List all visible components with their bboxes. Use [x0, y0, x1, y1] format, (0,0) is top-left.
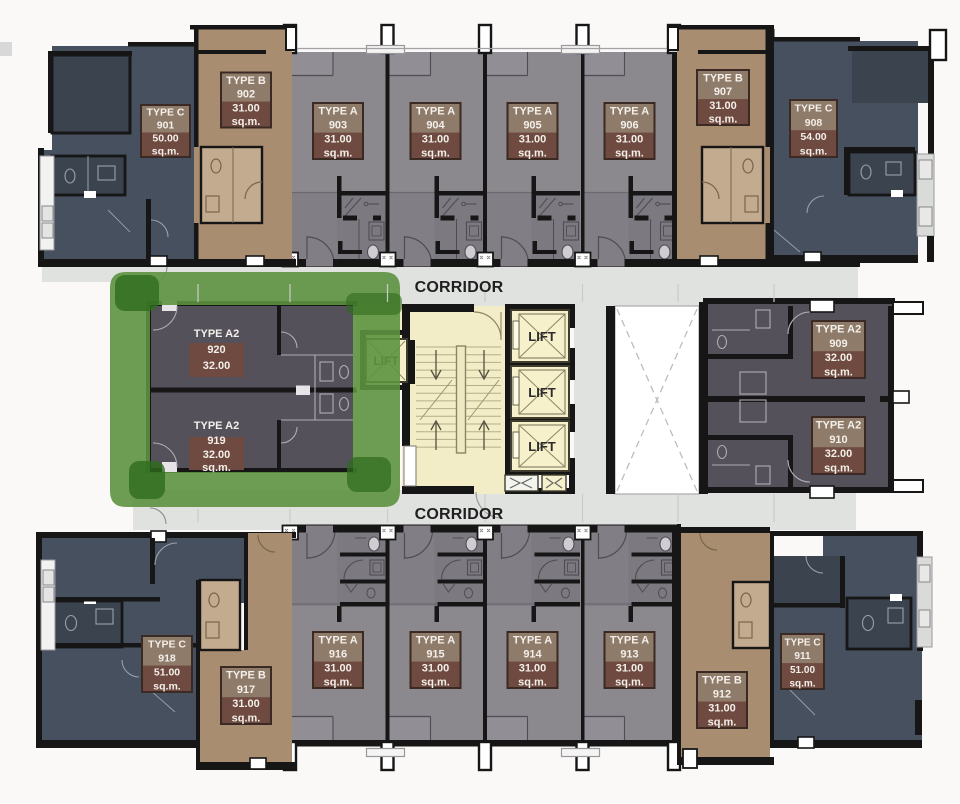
svg-text:31.00: 31.00	[616, 663, 644, 675]
svg-text:31.00: 31.00	[422, 663, 450, 675]
svg-text:914: 914	[523, 649, 542, 661]
svg-text:TYPE A: TYPE A	[513, 106, 552, 118]
svg-text:sq.m.: sq.m.	[518, 677, 547, 689]
svg-text:31.00: 31.00	[519, 663, 547, 675]
svg-text:31.00: 31.00	[616, 134, 644, 146]
svg-text:51.00: 51.00	[154, 667, 180, 679]
svg-text:sq.m.: sq.m.	[824, 462, 853, 474]
svg-text:TYPE C: TYPE C	[795, 103, 833, 115]
svg-text:TYPE C: TYPE C	[148, 639, 186, 651]
svg-text:TYPE B: TYPE B	[702, 675, 742, 687]
svg-text:sq.m.: sq.m.	[800, 145, 828, 157]
svg-text:920: 920	[207, 344, 225, 356]
svg-text:TYPE A2: TYPE A2	[816, 324, 861, 336]
svg-text:901: 901	[157, 120, 175, 132]
svg-text:sq.m.: sq.m.	[324, 148, 353, 160]
svg-text:911: 911	[794, 651, 811, 662]
svg-text:31.00: 31.00	[519, 134, 547, 146]
svg-text:919: 919	[207, 435, 225, 447]
svg-text:32.00: 32.00	[203, 360, 231, 372]
svg-text:912: 912	[713, 689, 731, 701]
svg-text:51.00: 51.00	[790, 665, 815, 676]
svg-text:sq.m.: sq.m.	[421, 148, 450, 160]
svg-text:903: 903	[329, 120, 347, 132]
svg-text:TYPE B: TYPE B	[226, 75, 266, 87]
svg-text:LIFT: LIFT	[528, 385, 555, 400]
svg-text:TYPE A: TYPE A	[610, 106, 649, 118]
svg-text:917: 917	[237, 684, 255, 696]
svg-text:TYPE C: TYPE C	[784, 637, 820, 648]
svg-text:TYPE A: TYPE A	[318, 106, 357, 118]
svg-text:sq.m.: sq.m.	[789, 679, 815, 690]
svg-text:TYPE A: TYPE A	[318, 635, 357, 647]
svg-text:907: 907	[714, 86, 732, 98]
svg-text:31.00: 31.00	[232, 102, 260, 114]
svg-text:TYPE A: TYPE A	[513, 635, 552, 647]
svg-text:TYPE A2: TYPE A2	[194, 328, 239, 340]
svg-text:sq.m.: sq.m.	[232, 116, 261, 128]
svg-text:TYPE B: TYPE B	[703, 72, 743, 84]
svg-text:sq.m.: sq.m.	[615, 677, 644, 689]
svg-text:915: 915	[426, 649, 444, 661]
svg-text:CORRIDOR: CORRIDOR	[415, 506, 504, 523]
svg-text:54.00: 54.00	[800, 131, 826, 143]
svg-text:50.00: 50.00	[152, 133, 178, 145]
svg-text:916: 916	[329, 649, 347, 661]
svg-text:sq.m.: sq.m.	[152, 146, 180, 158]
svg-text:902: 902	[237, 89, 255, 101]
svg-text:sq.m.: sq.m.	[518, 148, 547, 160]
svg-text:TYPE A: TYPE A	[416, 106, 455, 118]
svg-text:sq.m.: sq.m.	[421, 677, 450, 689]
svg-text:31.00: 31.00	[324, 663, 352, 675]
svg-text:31.00: 31.00	[422, 134, 450, 146]
svg-text:TYPE A: TYPE A	[416, 635, 455, 647]
svg-text:sq.m.: sq.m.	[708, 717, 737, 729]
svg-text:CORRIDOR: CORRIDOR	[415, 279, 504, 296]
svg-text:31.00: 31.00	[232, 698, 260, 710]
svg-text:sq.m.: sq.m.	[324, 677, 353, 689]
svg-text:910: 910	[829, 434, 847, 446]
svg-text:sq.m.: sq.m.	[232, 712, 261, 724]
svg-text:31.00: 31.00	[709, 100, 737, 112]
svg-text:TYPE C: TYPE C	[147, 107, 185, 119]
svg-text:sq.m.: sq.m.	[153, 681, 181, 693]
svg-text:sq.m.: sq.m.	[615, 148, 644, 160]
svg-text:906: 906	[620, 120, 638, 132]
svg-text:sq.m.: sq.m.	[824, 366, 853, 378]
svg-text:909: 909	[829, 338, 847, 350]
svg-text:904: 904	[426, 120, 445, 132]
svg-text:sq.m.: sq.m.	[709, 114, 738, 126]
svg-text:32.00: 32.00	[203, 449, 231, 461]
svg-text:913: 913	[620, 649, 638, 661]
svg-text:31.00: 31.00	[708, 703, 736, 715]
svg-text:908: 908	[805, 117, 823, 129]
svg-text:31.00: 31.00	[324, 134, 352, 146]
svg-text:905: 905	[523, 120, 541, 132]
svg-text:32.00: 32.00	[825, 448, 853, 460]
svg-text:32.00: 32.00	[825, 352, 853, 364]
svg-text:918: 918	[158, 653, 176, 665]
svg-text:TYPE A2: TYPE A2	[194, 420, 239, 432]
svg-text:TYPE A: TYPE A	[610, 635, 649, 647]
svg-text:LIFT: LIFT	[528, 439, 555, 454]
svg-text:LIFT: LIFT	[528, 329, 555, 344]
svg-text:TYPE B: TYPE B	[226, 670, 266, 682]
svg-text:TYPE A2: TYPE A2	[816, 420, 861, 432]
